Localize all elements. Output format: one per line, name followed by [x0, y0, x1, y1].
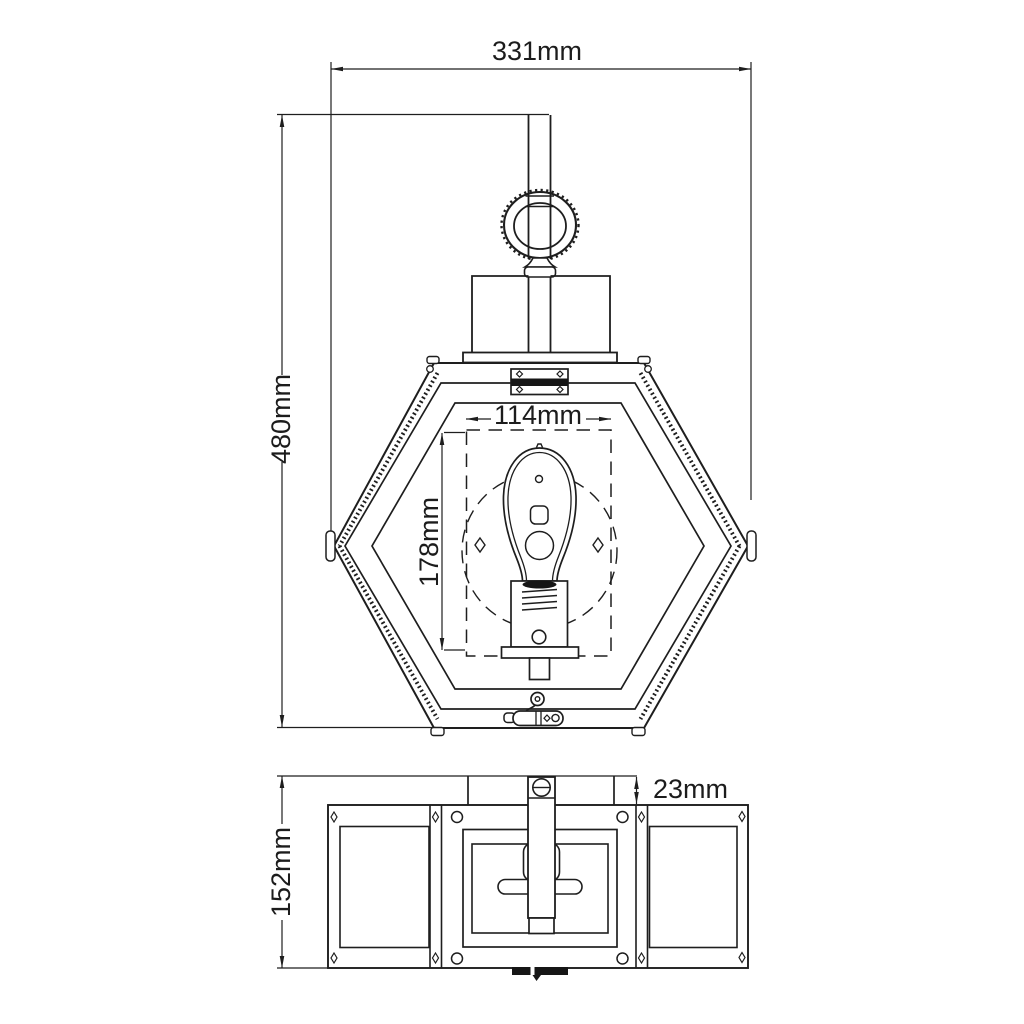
dimension-label-body-depth: 152mm: [266, 827, 296, 917]
bottom-left-corner-cap: [431, 728, 444, 736]
corner-hole-top-right: [617, 812, 628, 823]
corner-hole-top-left: [452, 812, 463, 823]
top-left-corner-screw-icon: [427, 366, 434, 373]
dimension-label-overall-height: 480mm: [266, 374, 296, 464]
dimension-cage-width: 114mm: [466, 400, 611, 430]
hanging-ring: [502, 190, 579, 277]
latch-tab-gap: [531, 967, 535, 976]
latch-ring: [531, 693, 544, 706]
latch-tab-tip: [533, 975, 542, 981]
dimension-backplate-depth: 23mm: [637, 774, 729, 804]
mounting-rod: [526, 115, 555, 259]
right-glass-panel: [639, 812, 746, 964]
top-right-corner-screw-icon: [645, 366, 652, 373]
front-elevation-view: 331mm 480mm: [266, 36, 756, 736]
right-panel-inner: [650, 827, 738, 948]
cage-screw-right-icon: [593, 538, 603, 552]
left-vertex-cap: [326, 531, 335, 561]
bulb-glass-outer: [503, 448, 576, 581]
dimension-cage-height: 178mm: [414, 433, 465, 651]
light-bulb: [503, 444, 576, 581]
bottom-right-corner-cap: [632, 728, 645, 736]
stem-foot: [529, 918, 554, 934]
top-right-corner-cap: [638, 357, 650, 364]
left-panel-screw-icons: [331, 812, 439, 963]
right-panel-screw-icons: [639, 812, 746, 964]
ring-inner: [514, 203, 566, 249]
socket-base-plate: [502, 647, 579, 658]
cage-screw-left-icon: [475, 538, 485, 552]
socket-thread-cap: [523, 581, 557, 589]
left-glass-panel: [331, 812, 439, 963]
corner-hole-bottom-left: [452, 953, 463, 964]
dimension-label-cage-height: 178mm: [414, 497, 444, 587]
bulb-socket: [502, 581, 579, 680]
bottom-view: 152mm 23mm: [266, 774, 748, 981]
right-vertex-cap: [747, 531, 756, 561]
bracket-hinge-bar: [511, 379, 568, 387]
technical-drawing: 331mm 480mm: [0, 0, 1024, 1024]
bulb-tip: [537, 444, 543, 448]
top-hinge-bracket: [511, 369, 568, 395]
dimension-label-cage-width: 114mm: [494, 400, 582, 430]
drawing-canvas: 331mm 480mm: [0, 0, 1024, 1024]
corner-hole-bottom-right: [617, 953, 628, 964]
canopy-body: [472, 276, 610, 352]
socket-lower-stem: [530, 658, 550, 680]
dimension-label-overall-width: 331mm: [492, 36, 582, 66]
dimension-label-backplate-depth: 23mm: [653, 774, 728, 804]
top-left-corner-cap: [427, 357, 439, 364]
extension-ticks: [444, 433, 465, 651]
latch-bar: [513, 711, 563, 726]
latch-tab-bar: [512, 967, 568, 975]
rod-lines: [529, 115, 551, 259]
canopy: [463, 276, 617, 363]
canopy-stem: [529, 277, 551, 352]
canopy-cap-plate: [463, 353, 617, 363]
center-stem: [528, 777, 555, 934]
bottom-latch-tab: [512, 967, 568, 982]
left-panel-inner: [340, 827, 429, 948]
